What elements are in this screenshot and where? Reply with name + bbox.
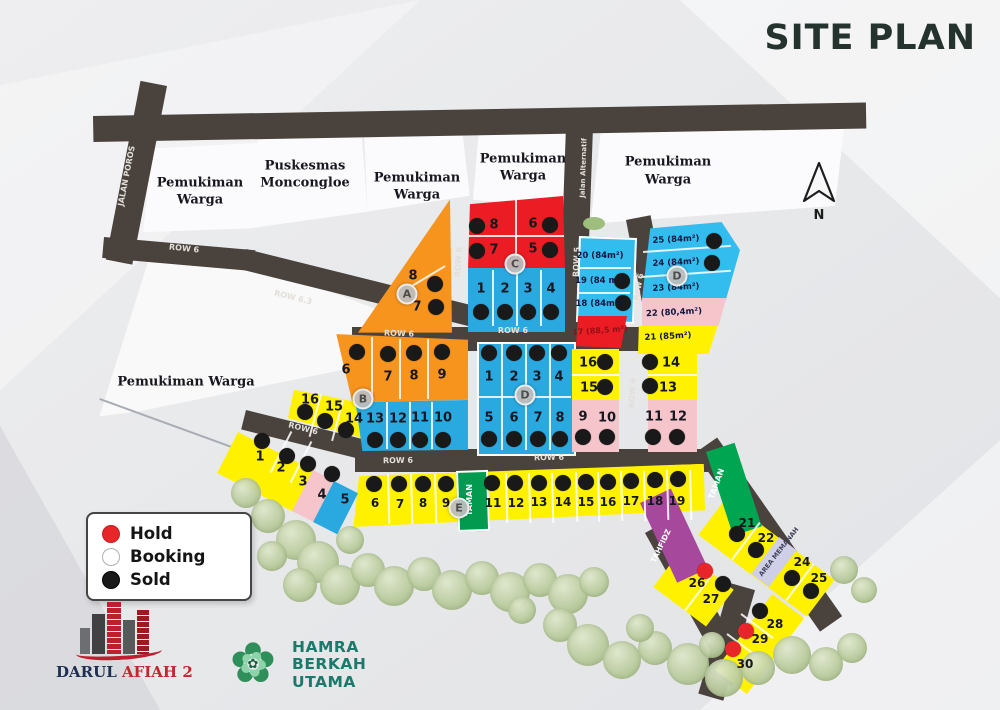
road-label: ROW 6 [534, 454, 564, 463]
plot-number: 26 [689, 577, 706, 589]
area-label: Warga [500, 170, 546, 183]
plot-number: 12 [669, 411, 687, 424]
plot-number: 11 [485, 497, 502, 509]
divider [431, 402, 433, 449]
plot-number: 7 [533, 412, 542, 425]
divider [492, 270, 494, 326]
status-dot-sold [645, 429, 661, 445]
status-dot-sold [597, 354, 613, 370]
plot-number: 4 [546, 283, 555, 296]
sold-dot-icon [102, 571, 120, 589]
legend-label: Booking [130, 547, 205, 566]
status-dot-sold [349, 344, 365, 360]
plot-number: 4 [554, 371, 563, 384]
plot-number: 11 [645, 411, 663, 424]
status-dot-sold [317, 413, 333, 429]
plot-number: 5 [484, 412, 493, 425]
plot-area: 20 (84m²) [577, 252, 624, 261]
plot-number: 5 [528, 243, 537, 256]
tree [830, 556, 858, 584]
divider [648, 374, 697, 376]
status-dot-sold [428, 299, 444, 315]
legend: Hold Booking Sold [86, 512, 252, 601]
road-label: ROW 6 [628, 378, 638, 409]
divider [427, 339, 429, 399]
divider [580, 267, 631, 269]
tree [603, 641, 641, 679]
north-arrow: N [799, 160, 839, 223]
plot-number: 12 [389, 413, 407, 426]
tree [336, 526, 364, 554]
plot-number: 1 [255, 451, 264, 464]
tree [773, 636, 811, 674]
status-dot-sold [599, 429, 615, 445]
flower-icon: ✿ ✿ ✿ [222, 634, 284, 696]
status-dot-sold [412, 432, 428, 448]
tree [837, 633, 867, 663]
status-dot-sold [803, 583, 819, 599]
area-label: Pemukiman [625, 156, 711, 169]
plot-number: 9 [437, 369, 446, 382]
plot-number: 25 [811, 572, 828, 584]
buildings-icon [80, 608, 158, 660]
plot-number: 22 [758, 532, 775, 544]
status-dot-sold [669, 429, 685, 445]
status-dot-sold [427, 276, 443, 292]
status-dot-sold [552, 431, 568, 447]
status-dot-sold [506, 345, 522, 361]
plot-area: 25 (84m²) [652, 235, 699, 246]
status-dot-sold [520, 304, 536, 320]
divider [469, 235, 564, 237]
plot-number: 14 [662, 357, 680, 370]
plot-number: 4 [317, 489, 326, 502]
status-dot-sold [670, 471, 686, 487]
plot-number: 3 [298, 476, 307, 489]
plot-area: 18 (84m²) [576, 300, 623, 309]
road-label: ROW 6 [384, 329, 414, 338]
status-dot-sold [784, 570, 800, 586]
plot-number: 18 [647, 495, 664, 507]
status-dot-sold [406, 345, 422, 361]
plot-number: 13 [659, 382, 677, 395]
plot-number: 2 [509, 371, 518, 384]
status-dot-sold [254, 433, 270, 449]
road-label: ROW 6 [498, 327, 528, 335]
status-dot-sold [497, 304, 513, 320]
swoosh-icon [75, 642, 162, 662]
legend-item-sold: Sold [102, 568, 250, 591]
block-badge-C: C [505, 254, 526, 275]
status-dot-sold [543, 304, 559, 320]
darul-afiah-logo: DARUL AFIAH 2 [56, 608, 181, 681]
status-dot-sold [551, 345, 567, 361]
plot-number: 16 [301, 394, 319, 407]
status-dot-sold [555, 475, 571, 491]
tree [699, 632, 725, 658]
status-dot-sold [366, 476, 382, 492]
plot-number: 6 [509, 412, 518, 425]
plot-number: 15 [578, 496, 595, 508]
status-dot-sold [578, 474, 594, 490]
hamra-wordmark: HAMRA BERKAH UTAMA [292, 639, 366, 691]
status-dot-sold [531, 475, 547, 491]
plot-number: 9 [578, 411, 587, 424]
status-dot-sold [473, 304, 489, 320]
status-dot-sold [715, 576, 731, 592]
plot-number: 11 [411, 412, 429, 425]
plot-number: 1 [476, 283, 485, 296]
status-dot-sold [597, 379, 613, 395]
plot-number: 16 [600, 496, 617, 508]
legend-label: Hold [130, 524, 173, 543]
legend-label: Sold [130, 570, 171, 589]
plot-number: 8 [555, 412, 564, 425]
area-label: Pemukiman [157, 177, 243, 190]
status-dot-sold [481, 345, 497, 361]
plot-number: 19 [669, 495, 686, 507]
page-title: SITE PLAN [764, 18, 976, 58]
block-badge-A: A [397, 284, 418, 305]
road-label: ROW 6 [383, 457, 413, 466]
area-label: Puskesmas [265, 160, 346, 173]
plot-number: 17 [623, 495, 640, 507]
plot-number: 7 [489, 244, 498, 257]
status-dot-sold [434, 344, 450, 360]
status-dot-sold [542, 217, 558, 233]
status-dot-hold [725, 641, 741, 657]
status-dot-sold [438, 476, 454, 492]
grass-patch [583, 217, 605, 230]
divider [579, 292, 630, 294]
status-dot-sold [507, 475, 523, 491]
divider [371, 337, 373, 399]
plot-number: 3 [523, 283, 532, 296]
status-dot-sold [435, 432, 451, 448]
plot-number: 13 [366, 413, 384, 426]
plot-number: 7 [412, 301, 421, 314]
plot-number: 8 [409, 370, 418, 383]
north-letter: N [799, 208, 839, 223]
status-dot-sold [647, 472, 663, 488]
status-dot-sold [542, 242, 558, 258]
status-dot-sold [380, 346, 396, 362]
plot-number: 8 [489, 219, 498, 232]
plot-number: 12 [508, 497, 525, 509]
site-plan-canvas: SITE PLAN N Hold Booking Sold [0, 0, 1000, 710]
divider [386, 402, 388, 449]
status-dot-sold [484, 475, 500, 491]
hamra-berkah-utama-logo: ✿ ✿ ✿ HAMRA BERKAH UTAMA [222, 634, 366, 696]
block-badge-D: D [667, 266, 688, 287]
plot-number: 14 [345, 413, 363, 426]
boundary-line [99, 398, 250, 455]
block-badge-E: E [449, 498, 470, 519]
status-dot-sold [642, 378, 658, 394]
plot-number: 16 [579, 357, 597, 370]
status-dot-sold [623, 473, 639, 489]
tree [257, 541, 287, 571]
plot-number: 21 [739, 517, 756, 529]
area-label: Pemukiman Warga [117, 376, 254, 389]
plot-number: 8 [419, 497, 427, 509]
status-dot-sold [469, 218, 485, 234]
status-dot-sold [390, 432, 406, 448]
divider [516, 270, 518, 326]
status-dot-sold [506, 431, 522, 447]
status-dot-sold [469, 243, 485, 259]
plot-number: 2 [500, 283, 509, 296]
status-dot-sold [752, 603, 768, 619]
plot-number: 6 [341, 364, 350, 377]
status-dot-sold [529, 345, 545, 361]
plot-number: 8 [408, 270, 417, 283]
tree [626, 614, 654, 642]
plot-number: 7 [383, 371, 392, 384]
plot-number: 13 [531, 496, 548, 508]
legend-item-hold: Hold [102, 522, 250, 545]
block-badge-B: B [353, 389, 374, 410]
plot-number: 28 [767, 618, 784, 630]
plot-number: 30 [737, 658, 754, 670]
status-dot-sold [530, 431, 546, 447]
tree [283, 568, 317, 602]
status-dot-sold [600, 474, 616, 490]
plot-number: 6 [528, 218, 537, 231]
plot-number: 14 [555, 496, 572, 508]
area-label: Pemukiman [374, 172, 460, 185]
divider [540, 270, 542, 326]
area-label: Pemukiman [480, 153, 566, 166]
status-dot-sold [415, 476, 431, 492]
area-label: Warga [394, 189, 440, 202]
plot-number: 10 [434, 412, 452, 425]
darul-afiah-wordmark: DARUL AFIAH 2 [56, 663, 181, 681]
status-dot-sold [642, 354, 658, 370]
area-label: Warga [177, 194, 223, 207]
tree [579, 567, 609, 597]
plot-number: 15 [580, 382, 598, 395]
plot-number: 15 [325, 401, 343, 414]
divider [409, 402, 411, 449]
plot-number: 1 [484, 371, 493, 384]
area-label: Warga [645, 174, 691, 187]
status-dot-sold [367, 432, 383, 448]
plot-number: 10 [598, 412, 616, 425]
plot-number: 7 [396, 498, 404, 510]
status-dot-sold [706, 233, 722, 249]
plot-number: 5 [340, 494, 349, 507]
booking-dot-icon [102, 548, 120, 566]
status-dot-sold [704, 255, 720, 271]
road-label: ROW 6 [454, 247, 464, 278]
status-dot-sold [481, 431, 497, 447]
legend-item-booking: Booking [102, 545, 250, 568]
tree [851, 577, 877, 603]
status-dot-sold [391, 476, 407, 492]
plot-number: 3 [532, 371, 541, 384]
plot-number: 2 [276, 462, 285, 475]
status-dot-sold [300, 456, 316, 472]
plot-area: 21 (85m²) [644, 332, 691, 343]
area-label: Moncongloe [260, 177, 350, 190]
status-dot-sold [575, 429, 591, 445]
plot-number: 27 [703, 593, 720, 605]
plot-number: 6 [371, 497, 379, 509]
divider [399, 339, 401, 399]
divider [572, 374, 619, 376]
plot-area: 19 (84 m²) [575, 277, 625, 286]
hold-dot-icon [102, 525, 120, 543]
block-badge-D: D [515, 385, 536, 406]
plot-number: 24 [794, 556, 811, 568]
plot-number: 29 [752, 633, 769, 645]
tree [508, 596, 536, 624]
north-arrow-icon [801, 160, 837, 206]
status-dot-sold [324, 466, 340, 482]
